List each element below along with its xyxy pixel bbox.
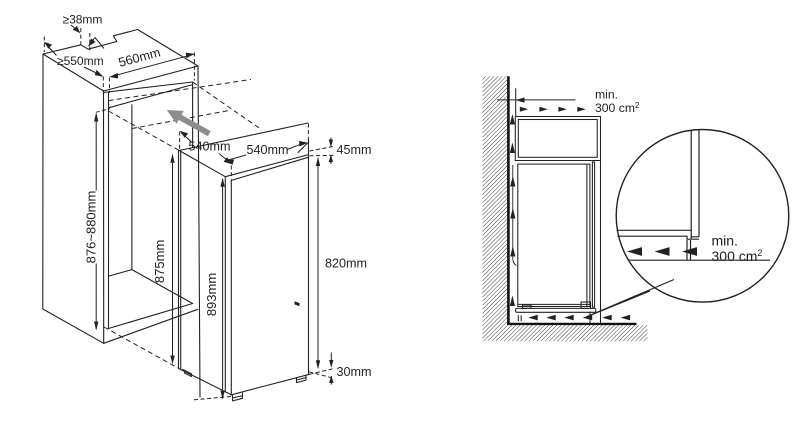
- svg-text:min.: min.: [595, 87, 618, 101]
- svg-text:875mm: 875mm: [152, 240, 167, 283]
- svg-text:300 cm2: 300 cm2: [595, 101, 640, 115]
- svg-text:540mm: 540mm: [189, 140, 231, 154]
- svg-text:876~880mm: 876~880mm: [83, 191, 98, 264]
- svg-text:893mm: 893mm: [204, 273, 219, 316]
- svg-text:820mm: 820mm: [325, 257, 367, 271]
- svg-text:30mm: 30mm: [337, 365, 372, 379]
- svg-text:≥38mm: ≥38mm: [63, 13, 103, 27]
- svg-text:45mm: 45mm: [337, 143, 372, 157]
- svg-text:300 cm2: 300 cm2: [712, 248, 763, 264]
- svg-text:540mm: 540mm: [247, 143, 289, 157]
- svg-text:≥550mm: ≥550mm: [57, 54, 104, 68]
- svg-text:min.: min.: [712, 233, 738, 249]
